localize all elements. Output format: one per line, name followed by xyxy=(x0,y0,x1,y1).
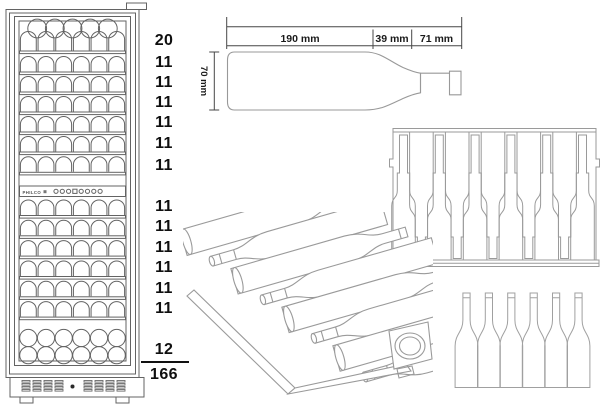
dim-label-body-length: 190 mm xyxy=(280,33,319,45)
vent-slot xyxy=(22,384,30,386)
standing-bottle xyxy=(500,293,523,388)
bottle-arch xyxy=(38,76,54,91)
tray-bottle-neck-down xyxy=(481,132,505,259)
tray-bottle-neck-up xyxy=(535,135,559,260)
bottle-arch xyxy=(73,31,89,50)
bottle-arch xyxy=(73,157,89,172)
bottle-circle xyxy=(108,329,125,346)
bottle-arch xyxy=(109,157,125,172)
bottle-arch xyxy=(73,96,89,111)
bottle-arch xyxy=(91,302,107,317)
bottle-arch xyxy=(109,56,125,71)
bottle-arch xyxy=(20,31,36,50)
bottle-arch xyxy=(20,116,36,131)
foot-right xyxy=(116,397,129,403)
bottle-circle xyxy=(63,19,82,38)
bottle-arch xyxy=(56,241,72,256)
shelf-line xyxy=(20,216,126,219)
bottle-arch xyxy=(56,157,72,172)
bottle-dimensions-diagram: 190 mm 39 mm 71 mm 70 mm xyxy=(195,8,495,120)
shelf-line xyxy=(20,112,126,115)
bottle-arch xyxy=(20,220,36,235)
vent-slot xyxy=(55,381,63,383)
shelf-line xyxy=(20,132,126,135)
bottle-arch xyxy=(56,116,72,131)
vent-slot xyxy=(55,387,63,389)
bottle-arch xyxy=(91,220,107,235)
bottle-arch xyxy=(109,261,125,276)
bottle-arch xyxy=(38,281,54,296)
vent-slot xyxy=(117,381,125,383)
bottle-arch xyxy=(20,200,36,215)
bottle-circle xyxy=(90,329,107,346)
tray-bottle-neck-up xyxy=(499,135,523,260)
dim-label-diameter: 70 mm xyxy=(198,66,209,96)
bottle-arch xyxy=(56,281,72,296)
bottle-arch xyxy=(73,261,89,276)
bottle-arch xyxy=(73,220,89,235)
wine-cooler-illustration: PHILCO xyxy=(0,0,200,407)
bottle-arch xyxy=(20,136,36,151)
bottle-arch xyxy=(109,281,125,296)
bottle-arch xyxy=(38,136,54,151)
indicator-circle[interactable] xyxy=(98,189,102,193)
vent-slot xyxy=(84,384,92,386)
bottle-arch xyxy=(56,220,72,235)
vent-slot xyxy=(106,390,114,392)
bottle-arch xyxy=(56,136,72,151)
vent-slot xyxy=(95,381,103,383)
standing-bottle xyxy=(478,293,501,388)
bottle-arch xyxy=(109,76,125,91)
bottle-arch xyxy=(38,157,54,172)
vent-slot xyxy=(106,384,114,386)
bottle-arch xyxy=(73,281,89,296)
bottle-arch xyxy=(73,200,89,215)
vent-slot xyxy=(44,387,52,389)
dim-label-neck-length: 71 mm xyxy=(420,33,453,45)
bottle-circle xyxy=(73,329,90,346)
vent-slot xyxy=(33,390,41,392)
indicator-circle[interactable] xyxy=(92,189,96,193)
vent-slot xyxy=(44,384,52,386)
bottle-arch xyxy=(73,302,89,317)
brand-logo: PHILCO xyxy=(23,190,42,195)
bottle-arch xyxy=(109,220,125,235)
bottle-circle xyxy=(37,329,54,346)
bottle-arch xyxy=(109,136,125,151)
shelf-line xyxy=(20,172,126,175)
bottle-arch xyxy=(91,157,107,172)
bottle-arch xyxy=(73,136,89,151)
vent-slot xyxy=(33,384,41,386)
bottle-arch xyxy=(38,200,54,215)
vent-slot xyxy=(117,390,125,392)
bottle-arch xyxy=(91,200,107,215)
bottle-arch xyxy=(38,96,54,111)
bottle-arch xyxy=(56,31,72,50)
hinge-tab xyxy=(127,3,147,10)
vent-slot xyxy=(22,390,30,392)
bottle-arch xyxy=(20,302,36,317)
vent-slot xyxy=(106,381,114,383)
vent-slot xyxy=(55,390,63,392)
tray-bottle-neck-down xyxy=(445,132,469,259)
indicator-square[interactable] xyxy=(73,189,77,193)
vent-slot xyxy=(95,384,103,386)
bottle-circle xyxy=(81,19,100,38)
standing-bottle xyxy=(567,293,590,388)
bottle-arch xyxy=(91,281,107,296)
bottle-arch xyxy=(56,261,72,276)
vent-slot xyxy=(95,387,103,389)
shelf-line xyxy=(20,297,126,300)
bottle-arch xyxy=(20,261,36,276)
bottle-arch xyxy=(91,241,107,256)
bottle-arch xyxy=(56,200,72,215)
vent-slot xyxy=(117,384,125,386)
bottle-arch xyxy=(109,96,125,111)
bottle-arch xyxy=(38,31,54,50)
bottle-arch xyxy=(73,116,89,131)
standing-bottle xyxy=(455,293,478,388)
lying-bottle-outline xyxy=(228,52,462,110)
bottle-circle xyxy=(98,19,117,38)
bottle-arch xyxy=(38,261,54,276)
shelf-line xyxy=(20,51,126,54)
standing-bottle xyxy=(545,293,568,388)
bottle-arch xyxy=(73,76,89,91)
bottle-arch xyxy=(56,76,72,91)
shelf-line xyxy=(20,317,126,320)
vent-slot xyxy=(55,384,63,386)
vent-slot xyxy=(117,387,125,389)
bottle-arch xyxy=(91,136,107,151)
tray-bottle-neck-down xyxy=(517,132,541,259)
bottle-arch xyxy=(20,281,36,296)
indicator-circle[interactable] xyxy=(54,189,58,193)
bottle-arch xyxy=(20,157,36,172)
bottle-arch xyxy=(91,56,107,71)
standing-bottles-diagram xyxy=(448,283,598,395)
presentation-shelf-diagram xyxy=(183,212,433,407)
bottle-circle xyxy=(28,19,47,38)
foot-left xyxy=(20,397,33,403)
bottle-arch xyxy=(56,56,72,71)
shelf-line xyxy=(20,92,126,95)
tray-bottle-neck-down xyxy=(553,132,577,259)
bottle-arch xyxy=(91,261,107,276)
bottle-arch xyxy=(91,96,107,111)
vent-slot xyxy=(33,381,41,383)
dim-label-shoulder-length: 39 mm xyxy=(375,33,408,45)
bottle-arch xyxy=(109,241,125,256)
bottle-circle xyxy=(55,329,72,346)
indicator-circle[interactable] xyxy=(85,189,89,193)
standing-bottle xyxy=(522,293,545,388)
shelf-line xyxy=(20,236,126,239)
bottle-arch xyxy=(91,116,107,131)
bottle-arch xyxy=(38,116,54,131)
shelf-line xyxy=(20,256,126,259)
capacity-diagram-page: PHILCO 2011111111111111111111111112166 1… xyxy=(0,0,600,407)
bottle-arch xyxy=(38,241,54,256)
bottle-arch xyxy=(109,302,125,317)
bottle-arch xyxy=(38,56,54,71)
shelf-rail xyxy=(187,290,295,394)
bottle-circle xyxy=(45,19,64,38)
bottle-arch xyxy=(38,220,54,235)
tray-bottle-neck-up xyxy=(463,135,487,260)
bottle-arch xyxy=(91,76,107,91)
bottle-arch xyxy=(73,241,89,256)
vent-slot xyxy=(106,387,114,389)
bottle-arch xyxy=(109,116,125,131)
vent-dot xyxy=(71,385,75,389)
vent-slot xyxy=(33,387,41,389)
bottle-arch xyxy=(109,31,125,50)
shelf-line xyxy=(20,277,126,280)
bottle-arch xyxy=(20,76,36,91)
vent-slot xyxy=(22,387,30,389)
vent-slot xyxy=(84,390,92,392)
bottle-arch xyxy=(56,96,72,111)
indicator-circle[interactable] xyxy=(60,189,64,193)
shelf-line xyxy=(20,72,126,75)
vent-slot xyxy=(84,387,92,389)
shelf-line xyxy=(20,152,126,155)
bottle-arch xyxy=(109,200,125,215)
vent-slot xyxy=(44,381,52,383)
bottle-arch xyxy=(73,56,89,71)
brand-mark-icon xyxy=(44,190,47,193)
bottle-arch xyxy=(91,31,107,50)
bottle-arch xyxy=(56,302,72,317)
vent-slot xyxy=(22,381,30,383)
vent-slot xyxy=(44,390,52,392)
bottle-arch xyxy=(38,302,54,317)
bottle-arch xyxy=(20,56,36,71)
bottle-arch xyxy=(20,241,36,256)
vent-slot xyxy=(95,390,103,392)
diameter-dimension-line xyxy=(209,52,219,110)
vent-slot xyxy=(84,381,92,383)
indicator-circle[interactable] xyxy=(67,189,71,193)
tray-bottle-neck-up xyxy=(571,135,595,260)
indicator-circle[interactable] xyxy=(79,189,83,193)
bottle-circle xyxy=(20,329,37,346)
bottle-arch xyxy=(20,96,36,111)
